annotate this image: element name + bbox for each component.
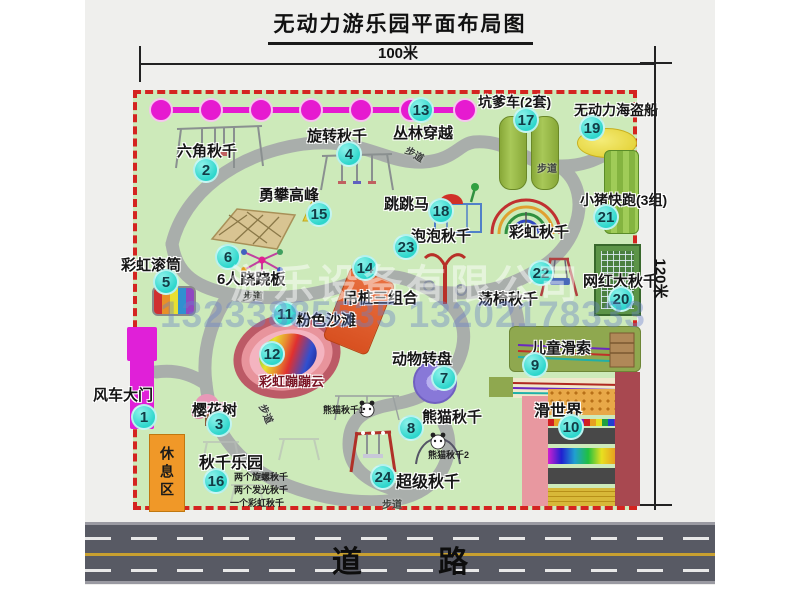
badge-24: 24 bbox=[370, 464, 396, 490]
badge-3: 3 bbox=[206, 411, 232, 437]
badge-9: 9 bbox=[522, 352, 548, 378]
badge-16: 16 bbox=[203, 468, 229, 494]
badge-20: 20 bbox=[608, 286, 634, 312]
label-swing-note-2: 两个发光秋千 bbox=[234, 483, 288, 496]
dim-label-height: 120米 bbox=[651, 258, 672, 298]
label-swing-chair: 荡椅秋千 bbox=[478, 288, 538, 309]
page-title-text: 无动力游乐园平面布局图 bbox=[268, 8, 533, 45]
label-hanging-pile: 吊桩三组合 bbox=[343, 287, 418, 308]
slide-world-dark-band-2 bbox=[548, 468, 615, 484]
rest-area: 休息区 bbox=[149, 434, 185, 512]
dim-label-width: 100米 bbox=[140, 42, 656, 63]
slide-world-rainbow-band bbox=[548, 448, 615, 464]
label-jumping-horse: 跳跳马 bbox=[384, 193, 429, 214]
swing-frame-faint-2-icon bbox=[277, 432, 321, 462]
label-pink-beach: 粉色沙滩 bbox=[296, 309, 356, 330]
dim-tick-bottom-right bbox=[640, 504, 672, 506]
road: 道 路 bbox=[85, 522, 715, 584]
badge-7: 7 bbox=[431, 365, 457, 391]
label-swing-note-1: 两个旋螺秋千 bbox=[234, 470, 288, 483]
badge-10: 10 bbox=[558, 414, 584, 440]
badge-21: 21 bbox=[593, 204, 619, 230]
rest-area-label: 休息区 bbox=[157, 446, 177, 500]
label-seesaw: 6人跷跷板 bbox=[217, 268, 285, 289]
label-rainbow-swing: 彩虹秋千 bbox=[509, 221, 569, 242]
badge-18: 18 bbox=[428, 198, 454, 224]
badge-17: 17 bbox=[513, 107, 539, 133]
dim-line-top bbox=[140, 63, 656, 65]
label-pit-car: 坑爹车(2套) bbox=[478, 92, 551, 112]
label-rotating-swing: 旋转秋千 bbox=[307, 125, 367, 146]
label-rainbow-cloud: 彩虹蹦蹦云 bbox=[259, 371, 324, 390]
badge-1: 1 bbox=[131, 404, 157, 430]
path-label-5: 步道 bbox=[382, 496, 402, 511]
badge-5: 5 bbox=[153, 269, 179, 295]
badge-23: 23 bbox=[393, 234, 419, 260]
page-title: 无动力游乐园平面布局图 bbox=[85, 8, 715, 45]
label-climbing-peak: 勇攀高峰 bbox=[259, 184, 319, 205]
badge-2: 2 bbox=[193, 157, 219, 183]
road-label: 道 路 bbox=[85, 537, 715, 581]
label-panda-swing-1: 熊猫秋千1 bbox=[323, 403, 364, 416]
label-swing-note-3: 一个彩虹秋千 bbox=[230, 496, 284, 509]
label-bubble-swing: 泡泡秋千 bbox=[411, 225, 471, 246]
badge-11: 11 bbox=[272, 301, 298, 327]
label-super-swing: 超级秋千 bbox=[396, 468, 460, 492]
badge-6: 6 bbox=[215, 244, 241, 270]
path-label-2: 步道 bbox=[537, 160, 557, 175]
label-panda-swing-2: 熊猫秋千2 bbox=[428, 448, 469, 461]
path-label-3: 步道 bbox=[243, 288, 263, 303]
badge-13: 13 bbox=[408, 97, 434, 123]
zipline-block-icon bbox=[489, 377, 513, 397]
bubble-swing-icon bbox=[419, 244, 471, 306]
badge-19: 19 bbox=[579, 115, 605, 141]
label-jungle-crossing: 丛林穿越 bbox=[393, 122, 453, 143]
label-windmill-gate: 风车大门 bbox=[93, 384, 153, 405]
badge-14: 14 bbox=[352, 255, 378, 281]
park-map: 休息区 bbox=[133, 90, 637, 510]
badge-22: 22 bbox=[528, 260, 554, 286]
slide-world-red-strip bbox=[615, 372, 640, 506]
slide-world-yellow-band bbox=[548, 488, 615, 506]
badge-12: 12 bbox=[259, 341, 285, 367]
badge-15: 15 bbox=[306, 201, 332, 227]
label-panda-swing: 熊猫秋千 bbox=[422, 406, 482, 427]
badge-8: 8 bbox=[398, 415, 424, 441]
badge-4: 4 bbox=[336, 141, 362, 167]
